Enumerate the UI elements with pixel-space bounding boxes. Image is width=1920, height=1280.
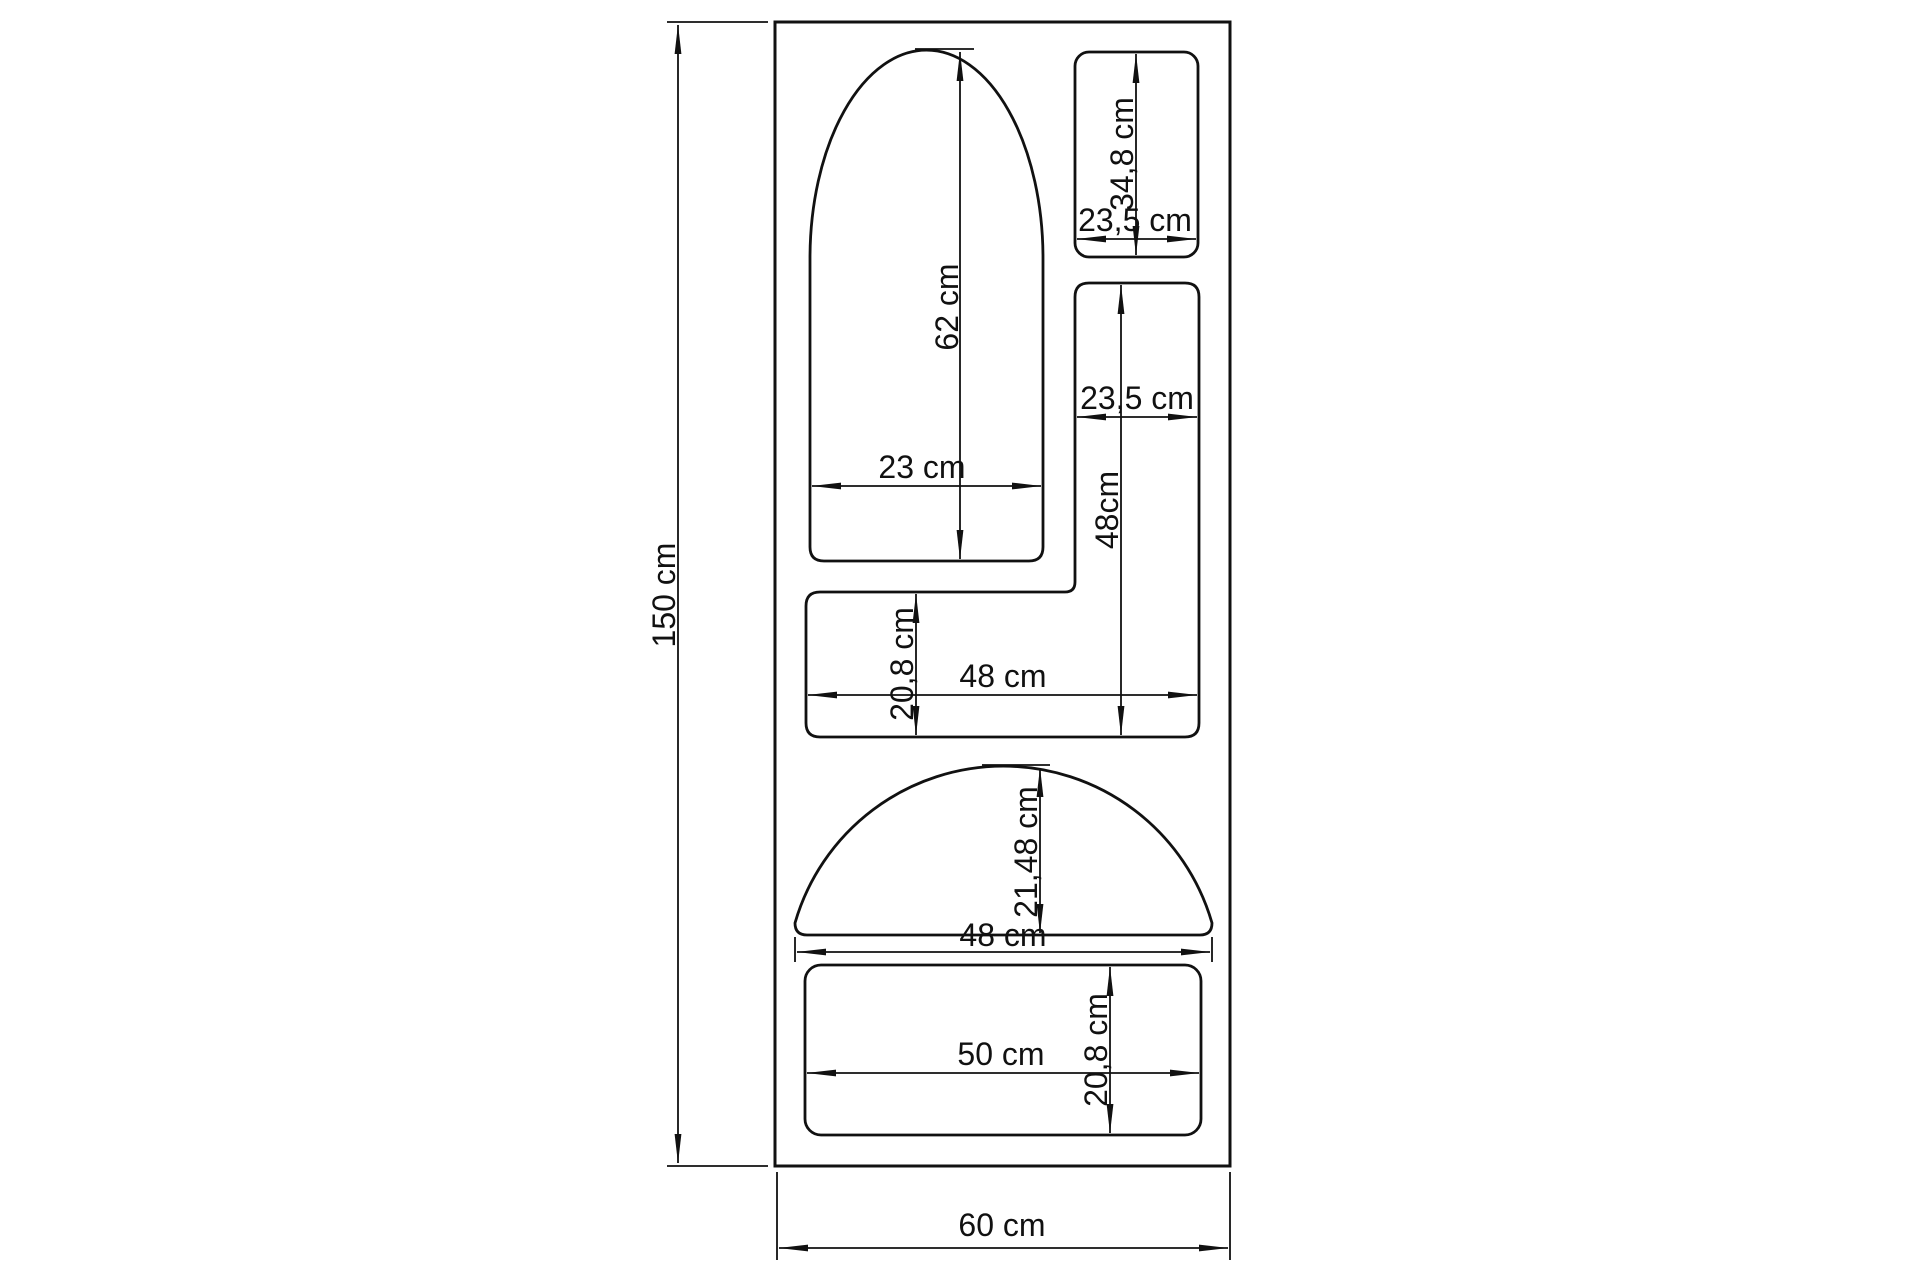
dim-left-bar-height-label: 20,8 cm	[884, 607, 920, 721]
dim-top-right-height-label: 34,8 cm	[1104, 97, 1140, 211]
dim-top-right-width-label: 23,5 cm	[1078, 202, 1192, 238]
dim-dome-height-label: 21,48 cm	[1008, 786, 1044, 918]
dim-arch-height-label: 62 cm	[929, 263, 965, 350]
cabinet-dimension-drawing: 150 cm 60 cm 62 cm 23 cm 34,8 cm 23,5 cm…	[0, 0, 1920, 1280]
dim-bottom-height-label: 20,8 cm	[1078, 993, 1114, 1107]
dim-arch-width-label: 23 cm	[878, 449, 965, 485]
dim-bottom-width-label: 50 cm	[957, 1036, 1044, 1072]
dim-right-column-width-label: 23,5 cm	[1080, 380, 1194, 416]
dim-overall-width-label: 60 cm	[958, 1207, 1045, 1243]
dim-dome-width-label: 48 cm	[959, 917, 1046, 953]
cabinet-outline	[775, 22, 1230, 1166]
dim-right-column-height-label: 48cm	[1089, 471, 1125, 549]
technical-drawing-page: 150 cm 60 cm 62 cm 23 cm 34,8 cm 23,5 cm…	[0, 0, 1920, 1280]
dim-left-bar-width-label: 48 cm	[959, 658, 1046, 694]
dim-overall-height-label: 150 cm	[646, 543, 682, 648]
